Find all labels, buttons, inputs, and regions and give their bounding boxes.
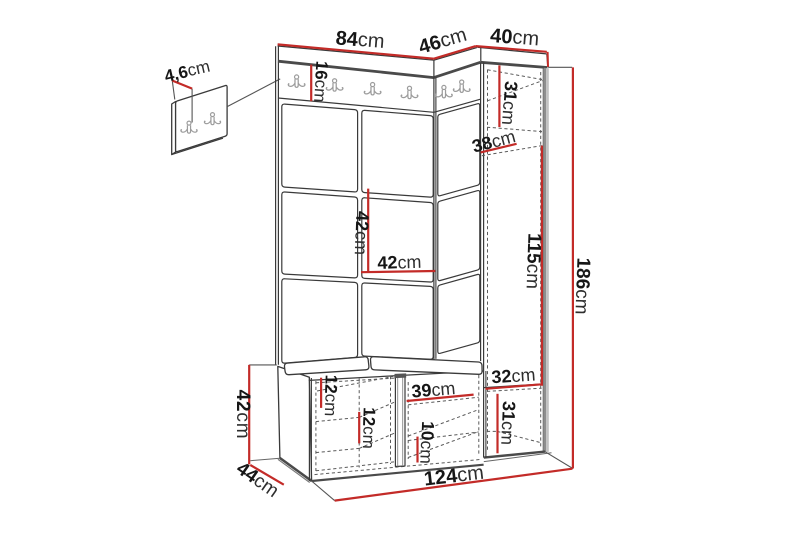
svg-text:31cm: 31cm xyxy=(498,80,521,125)
svg-text:186cm: 186cm xyxy=(570,257,593,315)
svg-text:42cm: 42cm xyxy=(377,251,422,273)
svg-text:42cm: 42cm xyxy=(351,211,373,256)
svg-text:32cm: 32cm xyxy=(491,364,536,387)
svg-text:12cm: 12cm xyxy=(320,374,340,416)
svg-text:84cm: 84cm xyxy=(335,27,385,53)
svg-text:12cm: 12cm xyxy=(358,407,378,449)
svg-text:42cm: 42cm xyxy=(232,390,253,440)
svg-text:10cm: 10cm xyxy=(417,421,438,464)
svg-text:115cm: 115cm xyxy=(522,233,545,290)
svg-text:31cm: 31cm xyxy=(497,401,519,446)
svg-text:40cm: 40cm xyxy=(489,25,539,51)
svg-text:16cm: 16cm xyxy=(310,60,332,103)
svg-text:39cm: 39cm xyxy=(411,378,457,402)
